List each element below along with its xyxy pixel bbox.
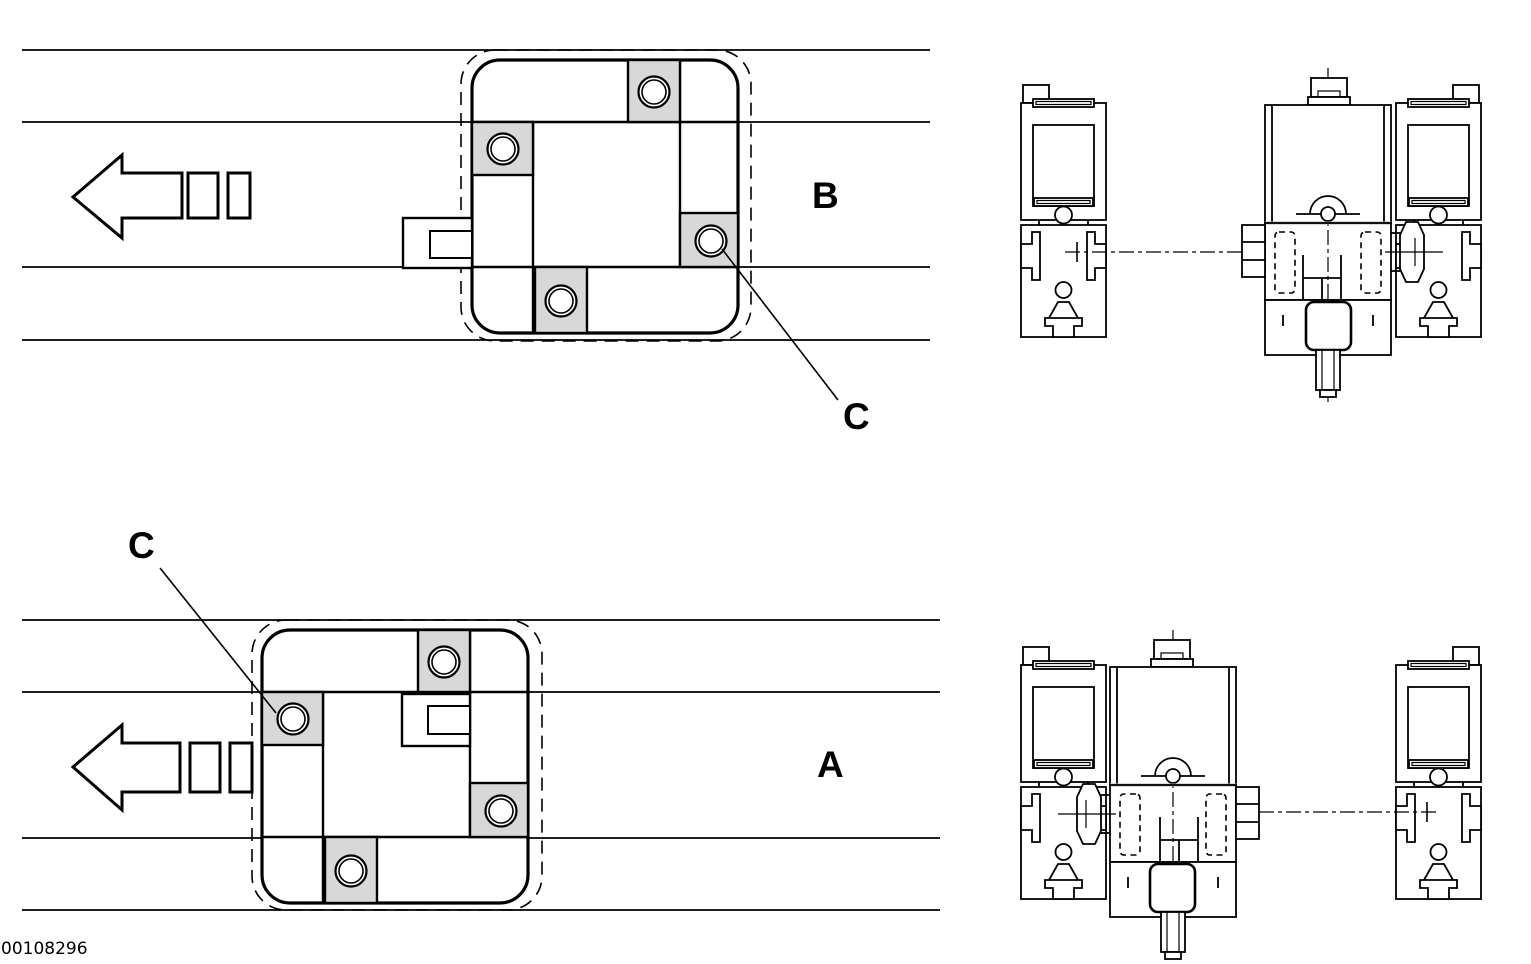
section-view-bottom xyxy=(1021,630,1481,959)
label-orientation-a: A xyxy=(817,746,844,783)
label-roller-c-bottom: C xyxy=(128,527,155,564)
figure-number: 00108296 xyxy=(1,941,88,958)
pallet-plan-view-b xyxy=(403,50,751,341)
diagram-artwork xyxy=(0,0,1531,964)
section-view-top xyxy=(1021,68,1481,402)
pallet-plan-view-a xyxy=(252,620,542,910)
leader-line-c-top xyxy=(722,249,838,400)
label-roller-c-top: C xyxy=(843,398,870,435)
technical-diagram: B C C A 00108296 xyxy=(0,0,1531,964)
direction-arrow-top xyxy=(73,155,250,238)
label-orientation-b: B xyxy=(812,177,839,214)
direction-arrow-bottom xyxy=(73,725,252,810)
